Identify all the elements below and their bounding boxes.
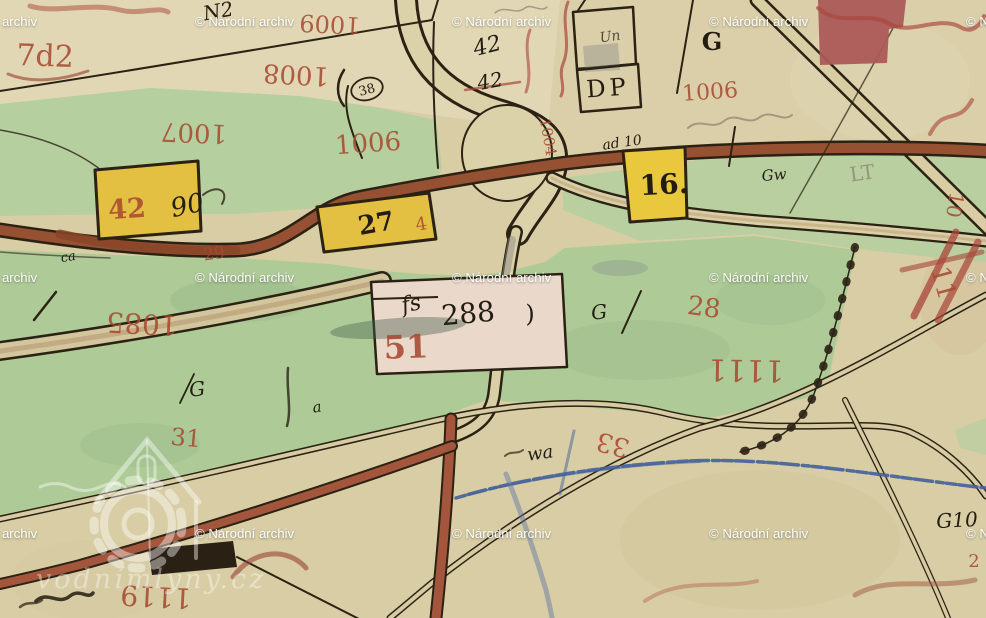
archive-watermark: © Národní archiv bbox=[0, 270, 38, 285]
parcel-number-31: 31 bbox=[169, 423, 202, 454]
archive-watermark: © Národní archiv bbox=[452, 526, 552, 541]
parcel-number-1008: 1008 bbox=[262, 57, 330, 90]
parcel-number-1111: 1111 bbox=[708, 351, 785, 387]
archive-watermark: © Národní archiv bbox=[195, 526, 295, 541]
note-gw: Gw bbox=[761, 165, 787, 185]
building-number-51: 51 bbox=[383, 327, 429, 367]
cadastral-map-image: 7d2 1009 1008 1007 1006 1006 1004 42 4 2… bbox=[0, 0, 986, 618]
archive-watermark: © Národní archiv bbox=[709, 270, 809, 285]
note-dp: DP bbox=[585, 73, 630, 104]
building-number-42-red: 42 bbox=[107, 193, 147, 227]
parcel-number-2-edge: 2 bbox=[968, 551, 979, 572]
note-lt-pencil: LT bbox=[848, 159, 877, 186]
parcel-number-1006-left: 1006 bbox=[334, 127, 402, 162]
building-number-27: 27 bbox=[356, 206, 397, 242]
archive-watermark: © Národní archiv bbox=[452, 14, 552, 29]
parcel-number-10-edge: 10 bbox=[941, 190, 969, 219]
archive-watermark: © Národní archiv bbox=[966, 270, 986, 285]
letter-g-mid: G bbox=[590, 299, 608, 324]
archive-watermark: © Národní archiv bbox=[0, 526, 38, 541]
parcel-number-28: 28 bbox=[685, 291, 722, 325]
archive-watermark: © Národní archiv bbox=[709, 526, 809, 541]
vodnimlyny-logo-text: vodnímlyny.cz bbox=[36, 564, 266, 595]
archive-watermark: © Národní archiv bbox=[709, 14, 809, 29]
note-wa: wa bbox=[526, 441, 555, 465]
note-ca: ca bbox=[60, 249, 77, 266]
building-number-288: 288 bbox=[440, 295, 496, 333]
parcel-number-29: 29 bbox=[202, 243, 226, 266]
note-42-lower: 42 bbox=[474, 67, 504, 95]
parcel-number-1006-right: 1006 bbox=[681, 78, 739, 107]
mark-paren: ) bbox=[525, 300, 534, 328]
archive-watermark: © Národní archiv bbox=[0, 14, 38, 29]
archive-watermark: © Národní archiv bbox=[966, 526, 986, 541]
archive-watermark: © Národní archiv bbox=[452, 270, 552, 285]
letter-g-top: G bbox=[702, 27, 723, 56]
map-viewport[interactable]: 7d2 1009 1008 1007 1006 1006 1004 42 4 2… bbox=[0, 0, 986, 618]
archive-watermark: © Národní archiv bbox=[195, 14, 295, 29]
letter-g-left: G bbox=[188, 376, 206, 401]
archive-watermark: © Národní archiv bbox=[966, 14, 986, 29]
archive-watermark: © Národní archiv bbox=[195, 270, 295, 285]
parcel-number-7d2: 7d2 bbox=[16, 38, 75, 75]
note-un: Un bbox=[599, 28, 622, 47]
meadow-corner-wedge bbox=[955, 418, 986, 455]
building-number-16: 16. bbox=[639, 167, 689, 203]
stream-branch bbox=[506, 474, 552, 618]
parcel-number-1009: 1009 bbox=[299, 8, 361, 39]
parcel-number-1007: 1007 bbox=[160, 116, 227, 148]
parcel-number-1085: 1085 bbox=[106, 305, 179, 342]
parcel-number-33: 33 bbox=[593, 425, 633, 463]
